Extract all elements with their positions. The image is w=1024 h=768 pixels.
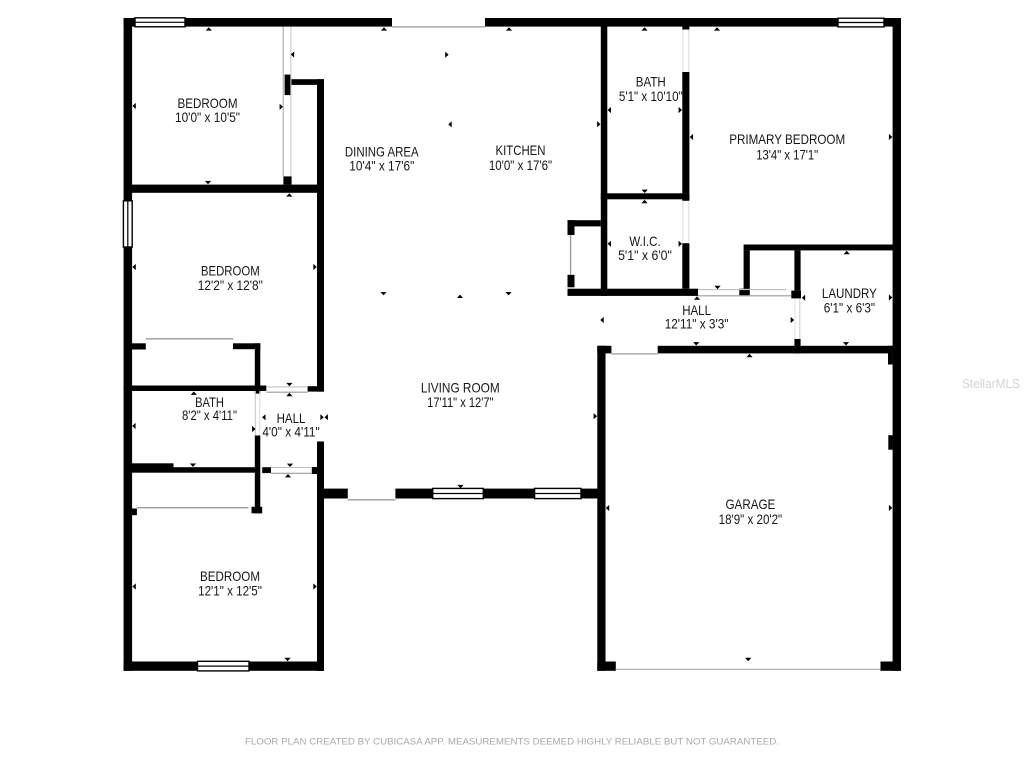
- svg-text:StellarMLS: StellarMLS: [962, 377, 1020, 391]
- svg-text:BEDROOM: BEDROOM: [200, 568, 260, 584]
- svg-text:5'1" x 6'0": 5'1" x 6'0": [618, 247, 672, 263]
- svg-text:PRIMARY BEDROOM: PRIMARY BEDROOM: [729, 131, 845, 147]
- svg-text:17'11" x 12'7": 17'11" x 12'7": [427, 394, 493, 410]
- svg-text:FLOOR PLAN CREATED BY CUBICASA: FLOOR PLAN CREATED BY CUBICASA APP. MEAS…: [245, 737, 779, 748]
- svg-text:8'2" x 4'11": 8'2" x 4'11": [182, 407, 237, 423]
- svg-text:5'1" x 10'10": 5'1" x 10'10": [619, 88, 683, 104]
- svg-text:12'11" x 3'3": 12'11" x 3'3": [665, 316, 729, 332]
- svg-text:KITCHEN: KITCHEN: [496, 142, 546, 158]
- svg-text:18'9" x 20'2": 18'9" x 20'2": [719, 511, 783, 527]
- svg-text:6'1" x 6'3": 6'1" x 6'3": [824, 299, 875, 315]
- svg-text:10'0" x 10'5": 10'0" x 10'5": [175, 109, 240, 125]
- svg-text:12'1" x 12'5": 12'1" x 12'5": [198, 583, 262, 599]
- svg-text:GARAGE: GARAGE: [726, 496, 776, 512]
- svg-text:4'0" x 4'11": 4'0" x 4'11": [262, 424, 319, 440]
- svg-text:12'2" x 12'8": 12'2" x 12'8": [198, 277, 263, 293]
- svg-text:10'4" x 17'6": 10'4" x 17'6": [349, 157, 414, 173]
- svg-text:13'4" x 17'1": 13'4" x 17'1": [756, 146, 818, 162]
- svg-text:10'0" x 17'6": 10'0" x 17'6": [489, 157, 552, 173]
